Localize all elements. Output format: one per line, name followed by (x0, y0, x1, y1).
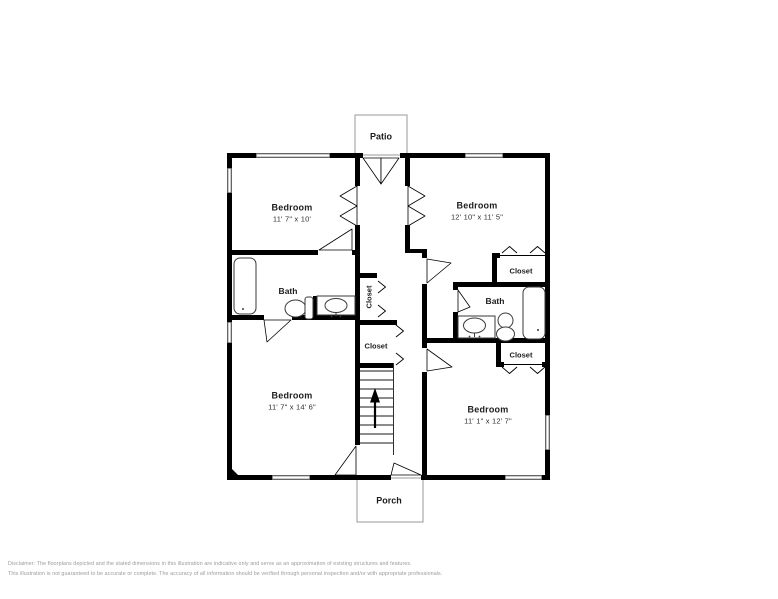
patio-door (363, 158, 381, 184)
room-dimensions: 11' 7" x 10' (272, 215, 313, 223)
stairs-group (360, 363, 394, 455)
patio-door (381, 158, 399, 184)
bedroom-top-right-label: Bedroom 12' 10" x 11' 5" (451, 201, 503, 221)
window (228, 168, 231, 193)
window (272, 476, 310, 479)
window (546, 415, 549, 450)
window (505, 476, 542, 479)
room-name: Bedroom (268, 391, 316, 400)
porch-label: Porch (376, 497, 402, 506)
stairs-up-arrow (370, 388, 380, 428)
closet-hall-lower-label: Closet (365, 342, 388, 350)
closet-bottom-right-label: Closet (510, 351, 533, 359)
sink-basin (464, 318, 486, 333)
toilet-tank (498, 313, 513, 328)
disclaimer-line-1: Disclaimer: The floorplans depicted and … (8, 562, 412, 567)
bedroom-tr-door (408, 206, 425, 226)
room-name: Bedroom (464, 405, 512, 414)
porch-door (391, 463, 421, 475)
room-dimensions: 11' 7" x 14' 6" (268, 403, 316, 411)
closet-top-right-label: Closet (510, 267, 533, 275)
bath-left-lower-door (264, 320, 291, 342)
room-dimensions: 12' 10" x 11' 5" (451, 213, 503, 221)
tub-drain (537, 329, 539, 331)
floorplan-drawing (0, 0, 778, 599)
toilet-bowl (497, 327, 515, 341)
bath-left-label: Bath (279, 287, 298, 296)
window (256, 154, 330, 157)
toilet-tank (305, 297, 313, 319)
room-dimensions: 11' 1" x 12' 7" (464, 417, 512, 425)
bedroom-tl-door (340, 206, 357, 226)
bathtub (234, 258, 256, 314)
bedroom-bl-door (335, 446, 356, 475)
window (465, 154, 503, 157)
bedroom-bottom-right-label: Bedroom 11' 1" x 12' 7" (464, 405, 512, 425)
disclaimer-line-2: This illustration is not guaranteed to b… (8, 572, 442, 577)
bedroom-top-left-label: Bedroom 11' 7" x 10' (272, 203, 313, 223)
sink-basin (325, 299, 347, 313)
hall-vestibule-door (427, 259, 451, 283)
patio-label: Patio (370, 133, 392, 142)
bedroom-tr-door (408, 186, 425, 206)
bedroom-tl-door (340, 186, 357, 206)
tub-drain (242, 308, 244, 310)
bath-right-label: Bath (486, 297, 505, 306)
bathtub (523, 287, 545, 339)
floorplan-page: Patio Bedroom 11' 7" x 10' Bedroom 12' 1… (0, 0, 778, 599)
corner-chamfer (227, 464, 243, 480)
room-name: Bedroom (272, 203, 313, 212)
bedroom-bottom-left-label: Bedroom 11' 7" x 14' 6" (268, 391, 316, 411)
bath-left-door (319, 229, 352, 250)
closet-hall-upper-label: Closet (365, 286, 373, 309)
toilet-bowl (285, 300, 306, 317)
window (228, 322, 231, 343)
room-name: Bedroom (451, 201, 503, 210)
bedroom-br-door (427, 349, 452, 371)
bath-right-door (458, 290, 470, 312)
